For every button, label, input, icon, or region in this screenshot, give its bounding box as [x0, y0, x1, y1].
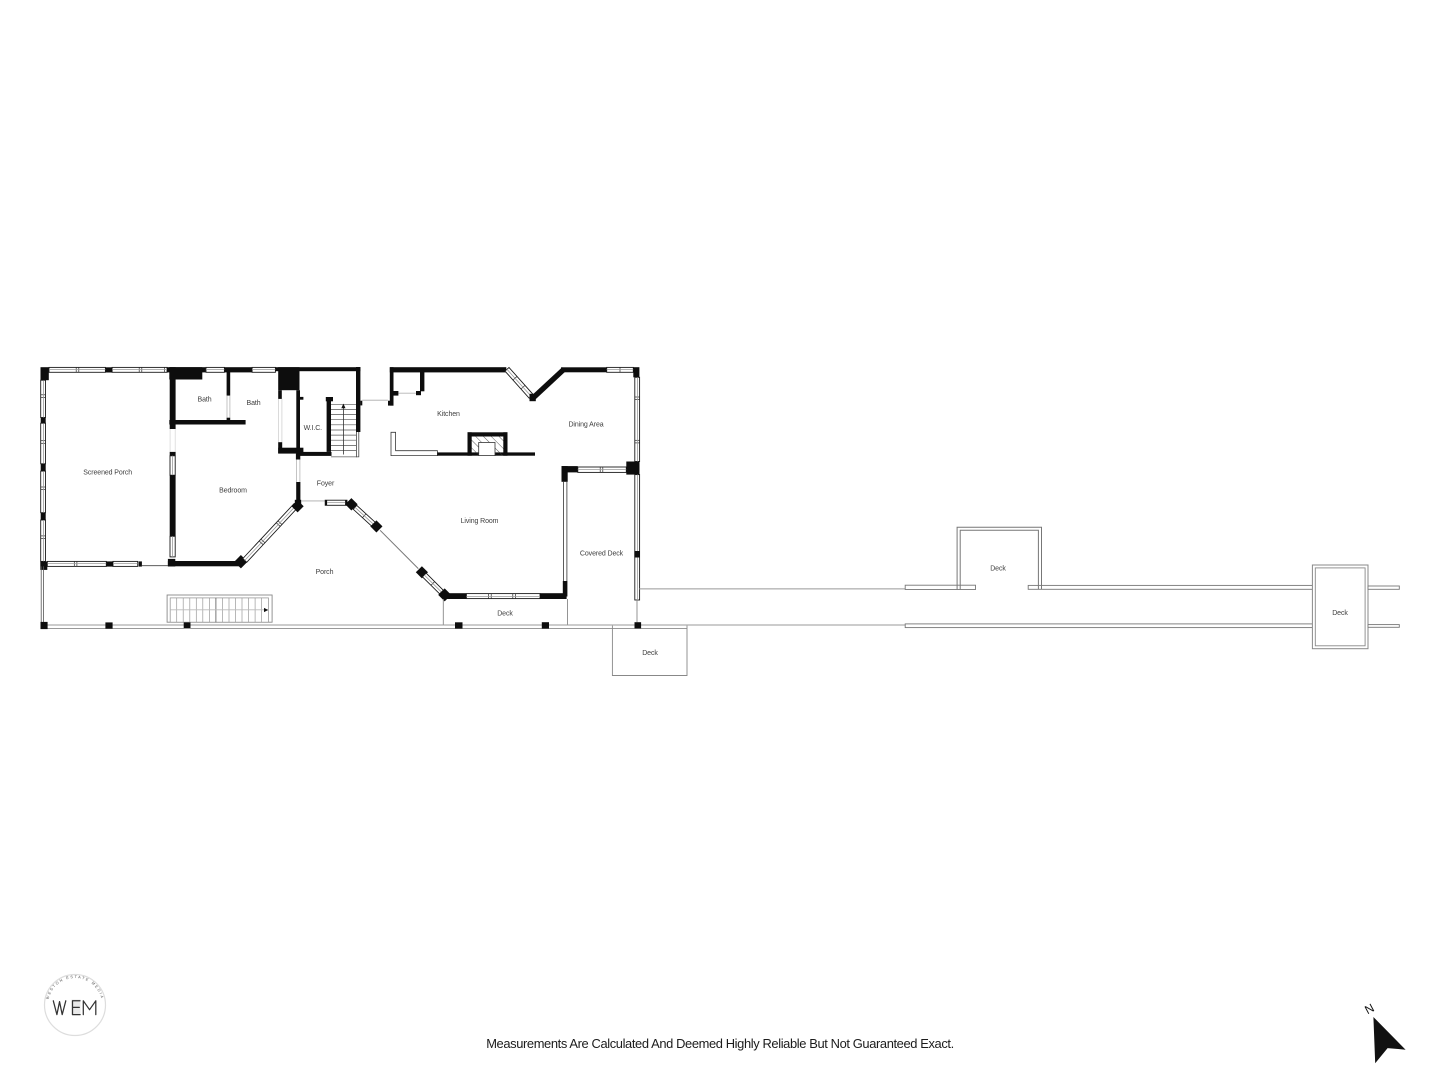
svg-text:Deck: Deck: [642, 650, 658, 657]
svg-text:Deck: Deck: [497, 610, 513, 617]
svg-text:Foyer: Foyer: [317, 480, 335, 487]
svg-text:Bedroom: Bedroom: [219, 487, 247, 494]
svg-text:Porch: Porch: [316, 569, 334, 576]
svg-text:W.I.C.: W.I.C.: [304, 425, 323, 432]
svg-text:Bath: Bath: [198, 396, 212, 403]
svg-text:Kitchen: Kitchen: [437, 411, 460, 418]
svg-text:Measurements Are Calculated An: Measurements Are Calculated And Deemed H…: [486, 1036, 954, 1051]
svg-text:Deck: Deck: [1332, 610, 1348, 617]
svg-text:Deck: Deck: [990, 565, 1006, 572]
svg-text:Dining Area: Dining Area: [568, 421, 603, 428]
svg-text:Covered Deck: Covered Deck: [580, 550, 624, 557]
svg-text:Bath: Bath: [247, 400, 261, 407]
svg-text:Living Room: Living Room: [461, 518, 499, 525]
svg-text:Screened Porch: Screened Porch: [83, 469, 132, 476]
